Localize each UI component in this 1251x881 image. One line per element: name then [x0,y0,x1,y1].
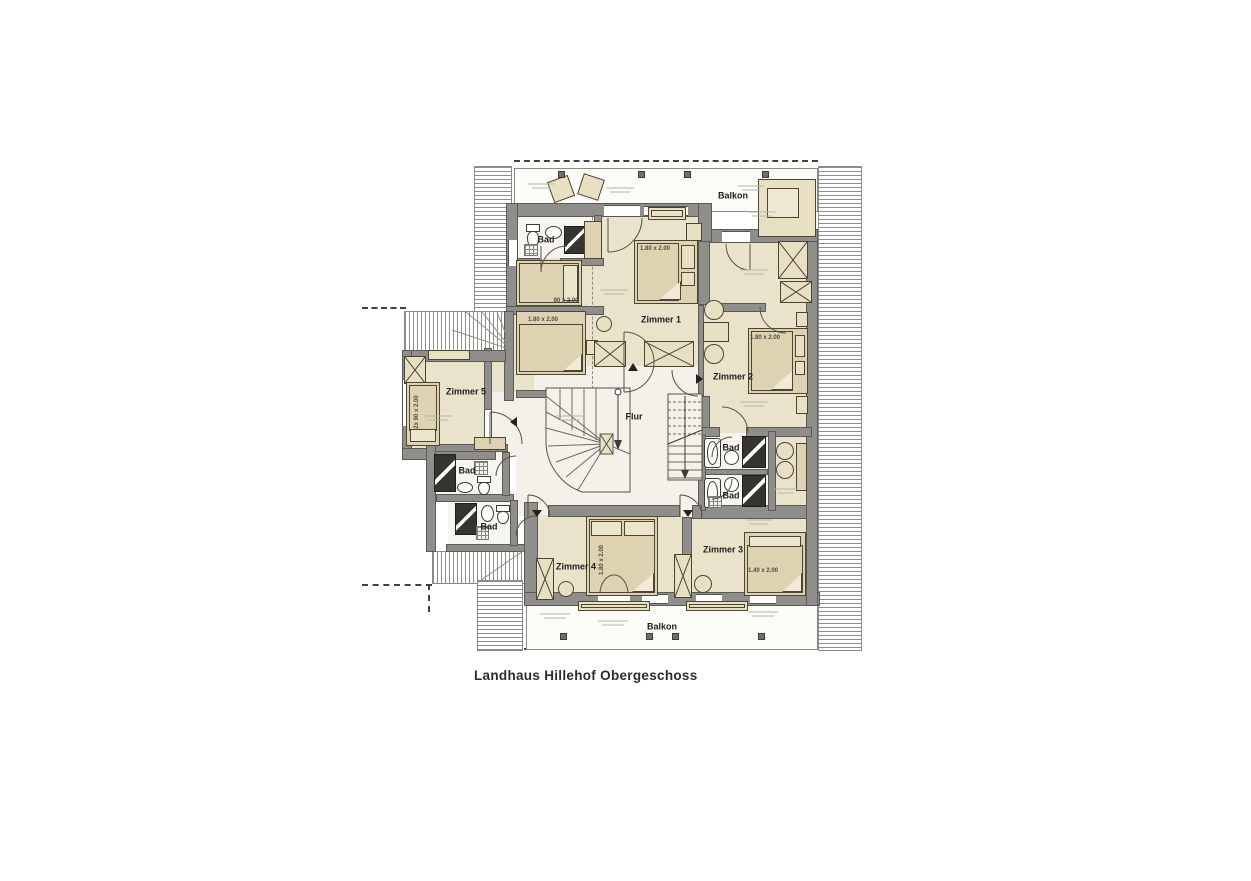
nightstand [796,396,808,414]
bench [578,601,650,611]
balcony-post [558,171,565,178]
roof-hatch-bottom-left-column [477,580,523,651]
pouf [776,461,794,479]
pouf [776,442,794,460]
bed-dimension: 90 x 2.00 [553,298,578,304]
wall [698,241,710,305]
nightstand [796,312,808,327]
balcony-door-slot-vestibule [722,231,750,243]
room-label-zimmer5: Zimmer 5 [446,388,486,397]
shelf [686,223,702,241]
room-label-bad-right-upper: Bad [722,444,739,453]
balcony-post [758,633,765,640]
shower [742,436,766,468]
toilet [496,505,510,524]
roof-hatch-left-band [404,311,516,353]
tiled-floor [524,244,538,256]
balcony-post [646,633,653,640]
cabinet [703,322,729,342]
room-label-flur: Flur [626,413,643,422]
wall [446,544,536,552]
room-label-bad-left-upper: Bad [458,467,475,476]
bed-dimension: 1.80 x 2.00 [528,317,558,323]
roof-overhang-line-left-upper [362,307,406,309]
floor-plan-canvas: Balkon Bad Zimmer 1 Zimmer 2 Zimmer 5 Fl… [0,0,1251,881]
roof-hatch-right-column [818,166,862,651]
wardrobe [404,356,426,384]
room-label-balkon-top: Balkon [718,192,748,201]
sink [481,505,494,522]
room-label-bad-left-lower: Bad [480,523,497,532]
chair [704,300,724,320]
balcony-post [560,633,567,640]
shower [434,454,456,492]
closet [796,443,807,491]
roof-overhang-line-left-lower [362,584,432,586]
sofa-set [758,179,816,237]
zimmer5-twin-bed [406,382,440,446]
bed-dimension: 1.80 x 2.00 [640,246,670,252]
zimmer3-double-bed [744,532,806,596]
toilet [477,476,491,495]
bed-dimension: 1.80 x 2.00 [599,545,605,575]
room-label-zimmer3: Zimmer 3 [703,546,743,555]
sink [457,482,473,493]
balcony-post [672,633,679,640]
roof-overhang-line-top [514,160,818,162]
bathtub [704,438,721,468]
room-label-balkon-bottom: Balkon [647,623,677,632]
wall [502,452,510,496]
door-slot-zimmer5 [484,410,492,438]
wall [768,431,776,511]
bench [648,207,686,220]
room-label-zimmer1: Zimmer 1 [641,316,681,325]
wardrobe [644,341,694,367]
bench [686,601,748,611]
bed-dimension: 1.40 x 2.00 [748,568,778,574]
room-label-bad-top-left: Bad [537,236,554,245]
stool [596,316,612,332]
wall [698,305,704,396]
balcony-post [762,171,769,178]
tiled-floor [708,496,722,508]
cabinet [584,221,602,259]
wall [692,505,702,519]
plan-title: Landhaus Hillehof Obergeschoss [474,668,698,683]
wardrobe [594,341,626,367]
chair [704,344,724,364]
wardrobe [778,241,808,279]
room-label-bad-right-lower: Bad [722,492,739,501]
chair [558,581,574,597]
balcony-post [684,171,691,178]
shower [455,503,477,535]
shower [742,475,766,507]
bench [428,350,470,360]
balcony-post [638,171,645,178]
wardrobe [674,554,692,598]
wardrobe [536,558,554,600]
roof-overhang-line-left-vertical [428,584,430,612]
chair [694,575,712,593]
zimmer4-double-bed [586,516,658,596]
bed-dimension: 2x 90 x 2.00 [414,395,420,428]
bed-dimension: 1.80 x 2.00 [750,335,780,341]
tiled-floor [474,461,488,475]
room-label-zimmer4: Zimmer 4 [556,563,596,572]
flur-floor [534,366,702,516]
balcony-door-slot-zimmer1 [604,205,640,217]
shower [564,226,586,254]
room-label-zimmer2: Zimmer 2 [713,373,753,382]
wall [516,390,604,398]
wardrobe [780,281,812,303]
closet [474,437,506,450]
wall [510,500,518,546]
